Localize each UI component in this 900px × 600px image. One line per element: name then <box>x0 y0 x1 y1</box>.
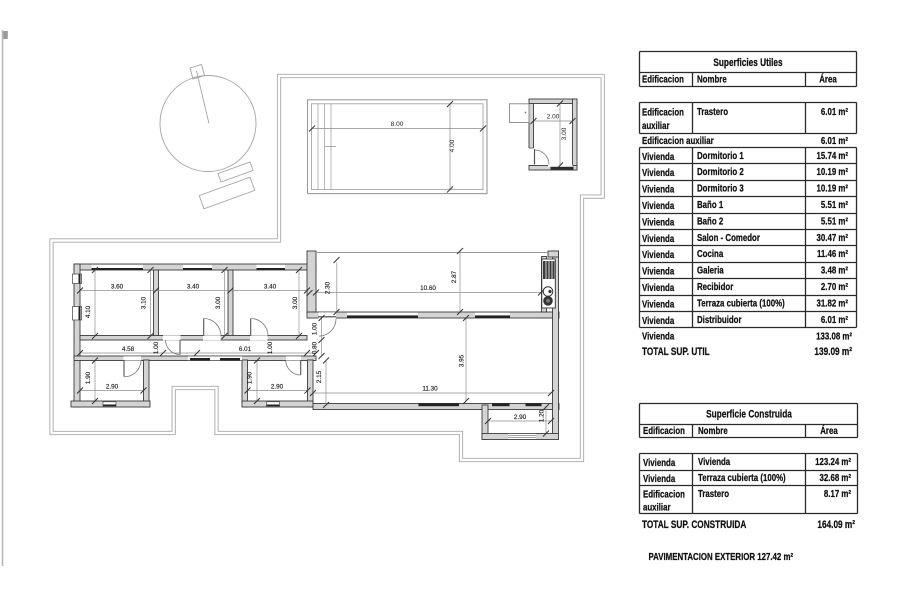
svg-text:3.48 m²: 3.48 m² <box>821 265 848 276</box>
svg-text:Vivienda: Vivienda <box>642 330 675 341</box>
svg-text:6.01: 6.01 <box>239 346 252 353</box>
svg-text:Dormitorio 3: Dormitorio 3 <box>697 183 744 194</box>
svg-text:31.82 m²: 31.82 m² <box>817 297 848 308</box>
svg-text:11.46 m²: 11.46 m² <box>817 248 848 259</box>
svg-text:0.80: 0.80 <box>312 341 319 354</box>
svg-text:Vivienda: Vivienda <box>642 216 675 227</box>
svg-text:1.90: 1.90 <box>85 371 92 384</box>
svg-text:PAVIMENTACION EXTERIOR 127.42: PAVIMENTACION EXTERIOR 127.42 m² <box>649 551 794 562</box>
svg-text:Terraza cubierta (100%): Terraza cubierta (100%) <box>698 472 786 483</box>
svg-text:Edificacion: Edificacion <box>642 73 684 84</box>
svg-text:1.00: 1.00 <box>267 341 274 354</box>
svg-text:1.00: 1.00 <box>153 341 160 354</box>
svg-text:2.30: 2.30 <box>325 281 332 294</box>
svg-text:3.40: 3.40 <box>187 284 200 291</box>
svg-text:Vivienda: Vivienda <box>643 457 676 468</box>
svg-text:Vivienda: Vivienda <box>642 266 675 277</box>
svg-text:8.17 m²: 8.17 m² <box>824 488 851 499</box>
svg-text:auxiliar: auxiliar <box>642 120 670 131</box>
svg-text:Edificacion auxiliar: Edificacion auxiliar <box>642 135 714 146</box>
svg-text:TOTAL SUP. CONSTRUIDA: TOTAL SUP. CONSTRUIDA <box>642 519 746 531</box>
svg-text:5.51 m²: 5.51 m² <box>821 199 848 210</box>
svg-text:Área: Área <box>820 425 838 436</box>
svg-text:6.01 m²: 6.01 m² <box>821 314 848 325</box>
svg-text:Edificacion: Edificacion <box>643 488 685 499</box>
svg-text:Área: Área <box>819 73 837 84</box>
svg-text:6.01 m²: 6.01 m² <box>821 135 848 146</box>
svg-text:2.70 m²: 2.70 m² <box>821 281 848 292</box>
svg-text:4.58: 4.58 <box>122 346 135 353</box>
svg-text:Galeria: Galeria <box>697 265 724 276</box>
svg-text:3.95: 3.95 <box>459 354 466 367</box>
svg-text:Vivienda: Vivienda <box>642 167 675 178</box>
svg-text:Vivienda: Vivienda <box>642 184 675 195</box>
svg-text:11.30: 11.30 <box>422 386 438 393</box>
svg-text:TOTAL SUP. UTIL: TOTAL SUP. UTIL <box>642 346 710 358</box>
svg-text:3.40: 3.40 <box>264 284 277 291</box>
svg-text:Vivienda: Vivienda <box>642 249 675 260</box>
svg-text:123.24 m²: 123.24 m² <box>815 456 851 467</box>
svg-text:Dormitorio 2: Dormitorio 2 <box>697 166 744 177</box>
svg-text:Vivienda: Vivienda <box>642 233 675 244</box>
svg-text:6.01 m²: 6.01 m² <box>821 106 848 117</box>
svg-text:Baño 2: Baño 2 <box>697 215 723 226</box>
svg-text:1.00: 1.00 <box>312 322 319 335</box>
svg-text:4.00: 4.00 <box>449 139 456 152</box>
svg-text:3.00: 3.00 <box>561 127 568 140</box>
svg-text:2.15: 2.15 <box>316 370 323 383</box>
svg-text:Dormitorio 1: Dormitorio 1 <box>697 150 744 161</box>
svg-text:30.47 m²: 30.47 m² <box>817 232 848 243</box>
svg-text:Vivienda: Vivienda <box>642 282 675 293</box>
svg-text:Vivienda: Vivienda <box>642 200 675 211</box>
svg-text:Vivienda: Vivienda <box>642 298 675 309</box>
svg-text:5.51 m²: 5.51 m² <box>821 215 848 226</box>
svg-text:1.20: 1.20 <box>539 409 546 422</box>
svg-text:Vivienda: Vivienda <box>698 456 731 467</box>
svg-text:Vivienda: Vivienda <box>642 151 675 162</box>
svg-text:4.10: 4.10 <box>85 305 92 318</box>
svg-text:Superficie Construida: Superficie Construida <box>706 408 792 420</box>
svg-text:3.00: 3.00 <box>292 296 299 309</box>
svg-text:Distribuidor: Distribuidor <box>697 314 742 325</box>
svg-text:10.19 m²: 10.19 m² <box>817 183 848 194</box>
svg-text:2.90: 2.90 <box>271 384 284 391</box>
svg-text:10.60: 10.60 <box>420 285 436 292</box>
svg-text:Trastero: Trastero <box>697 106 728 117</box>
svg-text:32.68 m²: 32.68 m² <box>820 472 851 483</box>
svg-text:3.10: 3.10 <box>141 296 148 309</box>
svg-text:Superficies Utiles: Superficies Utiles <box>713 57 782 69</box>
svg-text:8.00: 8.00 <box>391 121 404 128</box>
svg-text:Nombre: Nombre <box>697 73 727 84</box>
svg-text:Vivienda: Vivienda <box>642 315 675 326</box>
svg-text:3.60: 3.60 <box>111 284 124 291</box>
svg-text:164.09 m²: 164.09 m² <box>817 519 855 531</box>
svg-text:Edificacion: Edificacion <box>642 106 684 117</box>
svg-text:2.00: 2.00 <box>547 114 560 121</box>
svg-text:Vivienda: Vivienda <box>643 473 676 484</box>
svg-text:1.90: 1.90 <box>247 371 254 384</box>
svg-text:139.09 m²: 139.09 m² <box>814 346 852 358</box>
svg-text:auxiliar: auxiliar <box>643 501 671 512</box>
svg-text:2.90: 2.90 <box>106 384 119 391</box>
svg-text:2.90: 2.90 <box>514 414 527 421</box>
svg-text:Edificacion: Edificacion <box>643 425 685 436</box>
svg-text:2.87: 2.87 <box>451 270 458 283</box>
svg-text:Recibidor: Recibidor <box>697 281 734 292</box>
svg-text:Nombre: Nombre <box>698 425 728 436</box>
svg-text:Baño 1: Baño 1 <box>697 199 723 210</box>
svg-text:133.08 m²: 133.08 m² <box>816 330 852 341</box>
svg-text:3.00: 3.00 <box>215 296 222 309</box>
svg-text:Cocina: Cocina <box>697 248 724 259</box>
svg-text:Salon - Comedor: Salon - Comedor <box>697 232 760 243</box>
svg-text:15.74 m²: 15.74 m² <box>817 150 848 161</box>
svg-text:Trastero: Trastero <box>698 488 729 499</box>
svg-text:10.19 m²: 10.19 m² <box>817 166 848 177</box>
svg-text:Terraza cubierta (100%): Terraza cubierta (100%) <box>697 297 785 308</box>
